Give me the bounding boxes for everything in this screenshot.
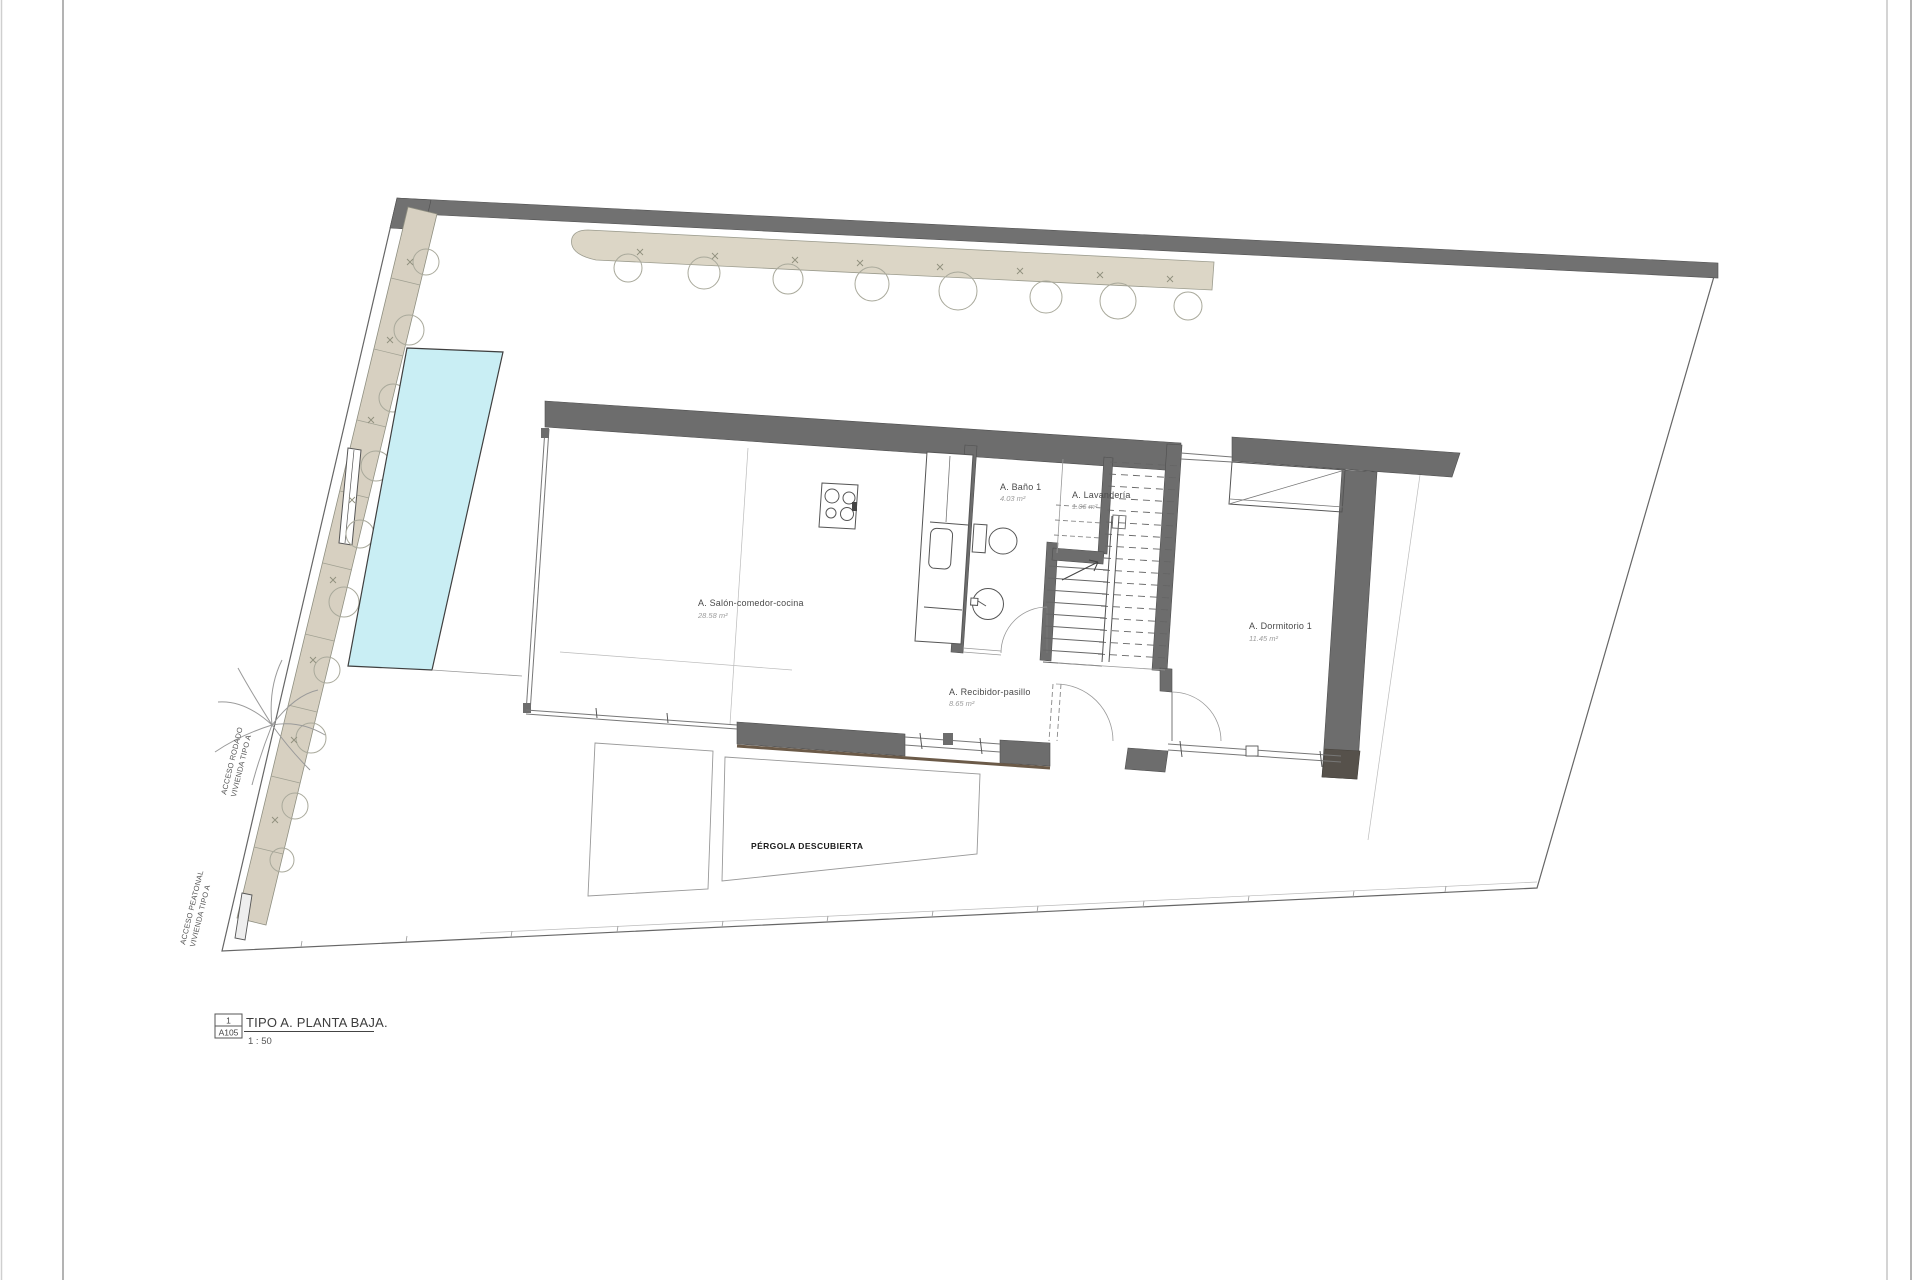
access-pedestrian-label: ACCESO PEATONAL VIVIENDA TIPO A [178, 869, 215, 947]
entrance-door-swing [1049, 684, 1113, 741]
title-block: 1 A105 TIPO A. PLANTA BAJA. 1 : 50 [215, 1014, 388, 1047]
pergola-area [722, 757, 980, 881]
south-wall-b [1000, 740, 1050, 766]
terrace-left [588, 743, 713, 896]
basin-tap [971, 598, 978, 605]
toilet-tank [972, 524, 987, 553]
salon-area: 28.58 m² [697, 611, 728, 620]
kitchen [819, 452, 973, 644]
lavanderia-label: A. Lavandería [1072, 490, 1131, 500]
detail-number: 1 [226, 1016, 231, 1026]
drawing-sheet: A. Salón-comedor-cocina 28.58 m² A. Baño… [0, 0, 1920, 1280]
dormitorio-east-wall-end [1322, 749, 1360, 779]
dormitorio-area: 11.45 m² [1249, 634, 1279, 643]
salon-label: A. Salón-comedor-cocina [698, 598, 804, 608]
north-wall [545, 401, 1181, 471]
south-glass-wall [526, 708, 737, 729]
door-jamb-wall [1160, 668, 1172, 692]
recibidor-label: A. Recibidor-pasillo [949, 687, 1031, 697]
doors [1049, 684, 1221, 741]
south-pier [1125, 748, 1168, 772]
toilet-bowl [989, 528, 1017, 554]
dormitorio-east-wall [1322, 470, 1377, 779]
bano-label: A. Baño 1 [1000, 482, 1041, 492]
terraces [588, 743, 980, 896]
cooktop [819, 483, 858, 529]
dormitorio-south-window [1168, 741, 1341, 767]
bathroom [971, 524, 1047, 653]
access-road-label: ACCESO RODADO VIVIENDA TIPO A [219, 726, 254, 798]
pergola-label: PÉRGOLA DESCUBIERTA [751, 841, 863, 851]
bano-area: 4.03 m² [1000, 494, 1026, 503]
entrance-door-assembly [905, 733, 1000, 754]
floor-boundary-lines [560, 448, 1420, 840]
dormitorio-door [1172, 692, 1221, 741]
recibidor-area: 8.65 m² [949, 699, 975, 708]
bano-door [1001, 607, 1047, 653]
floor-plan-canvas: A. Salón-comedor-cocina 28.58 m² A. Baño… [0, 0, 1920, 1280]
wardrobe [1229, 462, 1345, 512]
kitchen-sink [928, 528, 953, 569]
boundary-tick-marks [301, 886, 1446, 947]
stairs-dormitorio-wall [1152, 444, 1182, 671]
drawing-title: TIPO A. PLANTA BAJA. [246, 1015, 388, 1030]
stair-window [1181, 453, 1232, 462]
drawing-scale: 1 : 50 [248, 1036, 272, 1047]
west-glass-wall [523, 428, 549, 713]
room-labels: A. Salón-comedor-cocina 28.58 m² A. Baño… [697, 482, 1312, 708]
dormitorio-label: A. Dormitorio 1 [1249, 621, 1312, 631]
house-walls [545, 401, 1460, 779]
lavanderia-area: 1.06 m² [1072, 502, 1098, 511]
sheet-number: A105 [219, 1028, 239, 1038]
